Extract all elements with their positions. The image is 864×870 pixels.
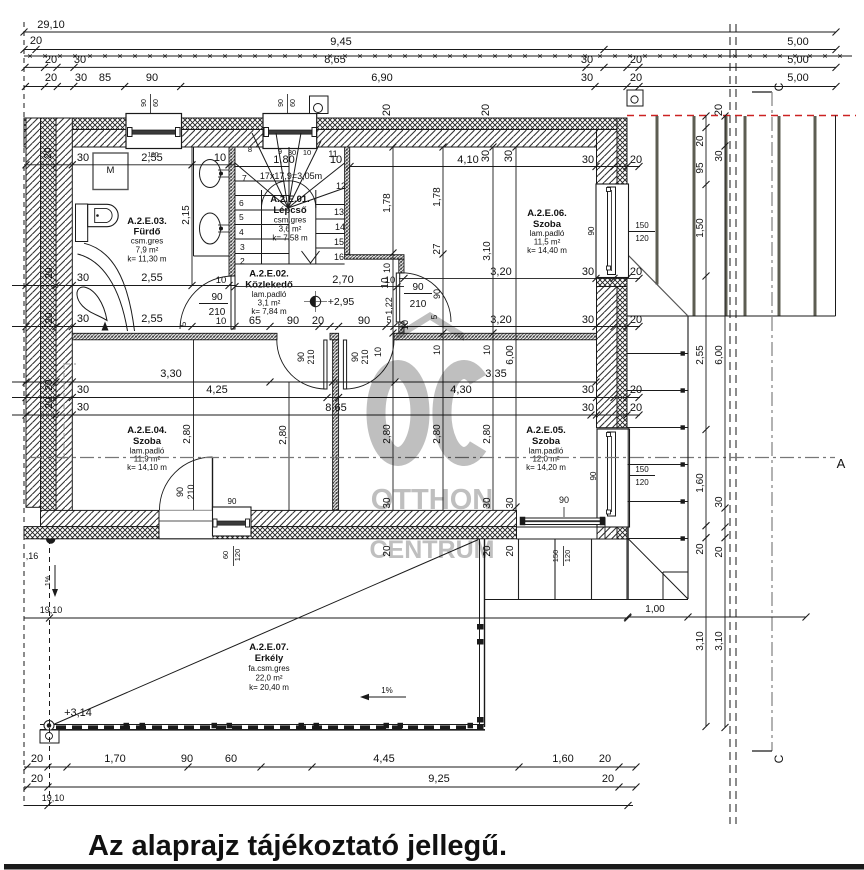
svg-text:7: 7	[242, 173, 247, 183]
svg-text:95: 95	[695, 162, 706, 174]
svg-text:3,10: 3,10	[714, 631, 725, 651]
svg-text:20: 20	[630, 266, 642, 278]
svg-text:3,6 m²: 3,6 m²	[279, 225, 302, 234]
svg-text:6,00: 6,00	[505, 345, 516, 365]
svg-text:30: 30	[77, 313, 89, 325]
svg-text:2,80: 2,80	[182, 424, 193, 444]
svg-text:30: 30	[505, 497, 516, 509]
svg-text:20: 20	[599, 753, 611, 765]
svg-text:+2,95: +2,95	[328, 296, 355, 308]
svg-text:29,10: 29,10	[37, 19, 65, 31]
svg-text:2,55: 2,55	[141, 313, 162, 325]
svg-text:90: 90	[175, 487, 185, 497]
svg-text:30: 30	[581, 72, 593, 84]
svg-text:+3,14: +3,14	[64, 707, 92, 719]
svg-text:k= 7,58 m: k= 7,58 m	[272, 234, 308, 243]
svg-text:1,60: 1,60	[695, 473, 706, 493]
svg-text:1,22: 1,22	[384, 297, 394, 315]
svg-text:5: 5	[386, 315, 391, 325]
svg-text:3,20: 3,20	[490, 314, 511, 326]
svg-text:A.2.E.01.: A.2.E.01.	[270, 194, 310, 205]
svg-text:8: 8	[248, 145, 252, 154]
svg-text:C: C	[772, 82, 786, 91]
svg-text:20: 20	[505, 545, 516, 557]
svg-text:3,30: 3,30	[160, 368, 181, 380]
svg-text:9,25: 9,25	[428, 773, 449, 785]
svg-text:5,00: 5,00	[787, 72, 808, 84]
svg-text:2,55: 2,55	[695, 345, 706, 365]
svg-text:20: 20	[480, 104, 492, 116]
svg-text:4,25: 4,25	[206, 384, 227, 396]
svg-text:210: 210	[360, 349, 370, 364]
svg-text:k= 14,20 m: k= 14,20 m	[526, 463, 566, 472]
svg-text:20: 20	[31, 773, 43, 785]
svg-text:30: 30	[77, 402, 89, 414]
svg-text:90: 90	[287, 315, 299, 327]
svg-text:90: 90	[350, 352, 360, 362]
svg-text:210: 210	[410, 299, 427, 310]
svg-text:30: 30	[582, 266, 594, 278]
svg-text:1,78: 1,78	[382, 193, 393, 213]
svg-text:20: 20	[630, 402, 642, 414]
svg-text:150: 150	[635, 221, 649, 230]
svg-text:150: 150	[635, 465, 649, 474]
svg-text:Az alaprajz tájékoztató jelleg: Az alaprajz tájékoztató jellegű.	[88, 830, 507, 862]
svg-text:30: 30	[714, 150, 725, 162]
svg-text:20: 20	[714, 546, 725, 558]
svg-text:30: 30	[582, 402, 594, 414]
svg-text:20: 20	[381, 104, 393, 116]
svg-text:10: 10	[432, 345, 442, 355]
svg-text:2,15: 2,15	[181, 205, 192, 225]
svg-text:k= 14,40 m: k= 14,40 m	[527, 246, 567, 255]
svg-text:7,9 m²: 7,9 m²	[136, 246, 159, 255]
svg-text:A.2.E.04.: A.2.E.04.	[127, 425, 167, 436]
svg-text:60: 60	[225, 753, 237, 765]
svg-text:20: 20	[44, 379, 55, 391]
svg-text:OTTHON: OTTHON	[371, 484, 493, 516]
svg-text:6,00: 6,00	[714, 345, 725, 365]
svg-text:120: 120	[635, 478, 649, 487]
svg-text:22,0 m²: 22,0 m²	[255, 674, 282, 683]
svg-text:30: 30	[77, 272, 89, 284]
svg-text:csm.gres: csm.gres	[131, 237, 163, 246]
svg-text:20: 20	[602, 773, 614, 785]
svg-text:30: 30	[77, 384, 89, 396]
svg-text:90: 90	[412, 282, 424, 293]
svg-text:k= 20,40 m: k= 20,40 m	[249, 683, 289, 692]
svg-text:3,10: 3,10	[482, 241, 493, 261]
svg-text:90: 90	[432, 289, 442, 299]
svg-text:2,80: 2,80	[278, 425, 289, 445]
svg-text:19,10: 19,10	[40, 605, 63, 615]
svg-text:10: 10	[373, 347, 383, 357]
svg-text:20: 20	[630, 72, 642, 84]
svg-text:30: 30	[480, 150, 492, 162]
svg-text:12: 12	[336, 181, 346, 191]
svg-text:30: 30	[581, 54, 593, 66]
svg-text:A.2.E.06.: A.2.E.06.	[527, 208, 567, 219]
svg-text:85: 85	[99, 72, 111, 84]
svg-text:A.2.E.07.: A.2.E.07.	[249, 642, 289, 653]
svg-text:10: 10	[216, 316, 227, 327]
svg-text:10: 10	[482, 345, 492, 355]
svg-text:20: 20	[43, 147, 54, 159]
svg-text:fa.csm.gres: fa.csm.gres	[248, 664, 289, 673]
svg-text:30: 30	[75, 72, 87, 84]
svg-text:20: 20	[31, 753, 43, 765]
svg-text:A.2.E.02.: A.2.E.02.	[249, 269, 289, 280]
svg-text:3,20: 3,20	[490, 266, 511, 278]
svg-text:Szoba: Szoba	[532, 436, 561, 447]
svg-text:30: 30	[77, 152, 89, 164]
svg-text:2,55: 2,55	[141, 272, 162, 284]
svg-text:C: C	[772, 754, 786, 763]
svg-text:Lépcső: Lépcső	[273, 205, 306, 216]
svg-text:A.2.E.05.: A.2.E.05.	[526, 425, 566, 436]
svg-text:k= 11,30 m: k= 11,30 m	[127, 255, 167, 264]
svg-text:19,10: 19,10	[42, 793, 65, 803]
svg-text:4: 4	[239, 227, 244, 237]
svg-text:20: 20	[630, 54, 642, 66]
svg-text:30: 30	[74, 54, 86, 66]
svg-text:10: 10	[382, 263, 392, 273]
svg-text:,16: ,16	[26, 551, 39, 561]
svg-text:17x17,9=3,05m: 17x17,9=3,05m	[260, 171, 322, 181]
svg-text:A.2.E.03.: A.2.E.03.	[127, 216, 167, 227]
svg-text:30: 30	[582, 154, 594, 166]
svg-text:30: 30	[503, 150, 515, 162]
svg-text:90: 90	[559, 495, 569, 505]
svg-text:210: 210	[306, 349, 316, 364]
svg-text:5: 5	[179, 321, 188, 326]
svg-text:20: 20	[312, 315, 324, 327]
svg-text:5,00: 5,00	[787, 54, 808, 66]
svg-text:210: 210	[186, 484, 196, 499]
svg-text:60: 60	[290, 99, 297, 107]
svg-text:csm.gres: csm.gres	[274, 216, 306, 225]
svg-text:A: A	[837, 456, 846, 471]
svg-text:5: 5	[239, 212, 244, 222]
svg-text:6: 6	[239, 198, 244, 208]
svg-text:20: 20	[713, 104, 725, 116]
svg-text:20: 20	[695, 543, 706, 555]
svg-text:27: 27	[432, 243, 443, 255]
svg-text:1,78: 1,78	[432, 187, 443, 207]
svg-text:1,80: 1,80	[273, 154, 294, 166]
svg-text:1,00: 1,00	[645, 604, 665, 615]
svg-text:90: 90	[358, 315, 370, 327]
svg-text:10: 10	[330, 154, 342, 166]
svg-text:20: 20	[45, 54, 57, 66]
svg-text:9,45: 9,45	[330, 36, 351, 48]
svg-text:20: 20	[695, 135, 706, 147]
svg-text:20: 20	[44, 397, 55, 409]
svg-text:10: 10	[303, 148, 311, 157]
svg-text:2,70: 2,70	[332, 274, 353, 286]
svg-text:90: 90	[181, 753, 193, 765]
svg-text:120: 120	[563, 550, 572, 563]
svg-text:CENTRUM: CENTRUM	[370, 536, 495, 564]
svg-text:2,80: 2,80	[482, 424, 493, 444]
svg-text:8,65: 8,65	[324, 54, 345, 66]
svg-text:180: 180	[148, 152, 159, 159]
svg-text:5,00: 5,00	[787, 36, 808, 48]
svg-text:30: 30	[582, 314, 594, 326]
svg-text:3,35: 3,35	[485, 368, 506, 380]
svg-text:6,90: 6,90	[371, 72, 392, 84]
svg-text:8,65: 8,65	[325, 402, 346, 414]
svg-text:20: 20	[630, 314, 642, 326]
svg-text:90: 90	[589, 471, 598, 480]
svg-text:4,45: 4,45	[373, 753, 394, 765]
svg-text:15: 15	[334, 237, 344, 247]
svg-text:1,60: 1,60	[552, 753, 573, 765]
svg-text:Közlekedő: Közlekedő	[245, 280, 293, 291]
svg-text:120: 120	[635, 234, 649, 243]
svg-text:90: 90	[228, 497, 237, 506]
svg-text:13: 13	[334, 207, 344, 217]
svg-text:3,10: 3,10	[695, 631, 706, 651]
svg-text:2: 2	[240, 256, 245, 266]
svg-text:M: M	[107, 165, 115, 176]
svg-text:1%: 1%	[381, 686, 393, 695]
svg-text:90: 90	[278, 99, 285, 107]
svg-text:1,50: 1,50	[695, 218, 706, 238]
svg-text:20: 20	[30, 35, 42, 47]
svg-text:20: 20	[45, 72, 57, 84]
svg-text:90: 90	[587, 226, 596, 235]
svg-text:60: 60	[153, 99, 160, 107]
svg-text:1,70: 1,70	[104, 753, 125, 765]
svg-text:90: 90	[211, 292, 223, 303]
svg-text:20: 20	[44, 312, 55, 324]
svg-text:65: 65	[249, 315, 261, 327]
svg-text:60: 60	[221, 551, 230, 559]
svg-text:10: 10	[214, 152, 226, 164]
svg-text:30: 30	[582, 384, 594, 396]
svg-text:14: 14	[335, 222, 345, 232]
svg-text:1%: 1%	[45, 576, 52, 586]
svg-text:Erkély: Erkély	[255, 653, 284, 664]
svg-text:20: 20	[44, 267, 55, 279]
svg-text:20: 20	[630, 154, 642, 166]
svg-text:16: 16	[334, 252, 344, 262]
svg-text:Szoba: Szoba	[133, 436, 162, 447]
svg-text:10: 10	[380, 277, 391, 289]
svg-text:90: 90	[296, 352, 306, 362]
svg-text:4,10: 4,10	[457, 154, 478, 166]
svg-text:10: 10	[216, 275, 227, 286]
svg-text:30: 30	[714, 496, 725, 508]
svg-text:90: 90	[141, 99, 148, 107]
svg-text:3: 3	[240, 242, 245, 252]
svg-text:90: 90	[146, 72, 158, 84]
svg-text:k= 14,10 m: k= 14,10 m	[127, 463, 167, 472]
svg-text:120: 120	[233, 549, 242, 562]
